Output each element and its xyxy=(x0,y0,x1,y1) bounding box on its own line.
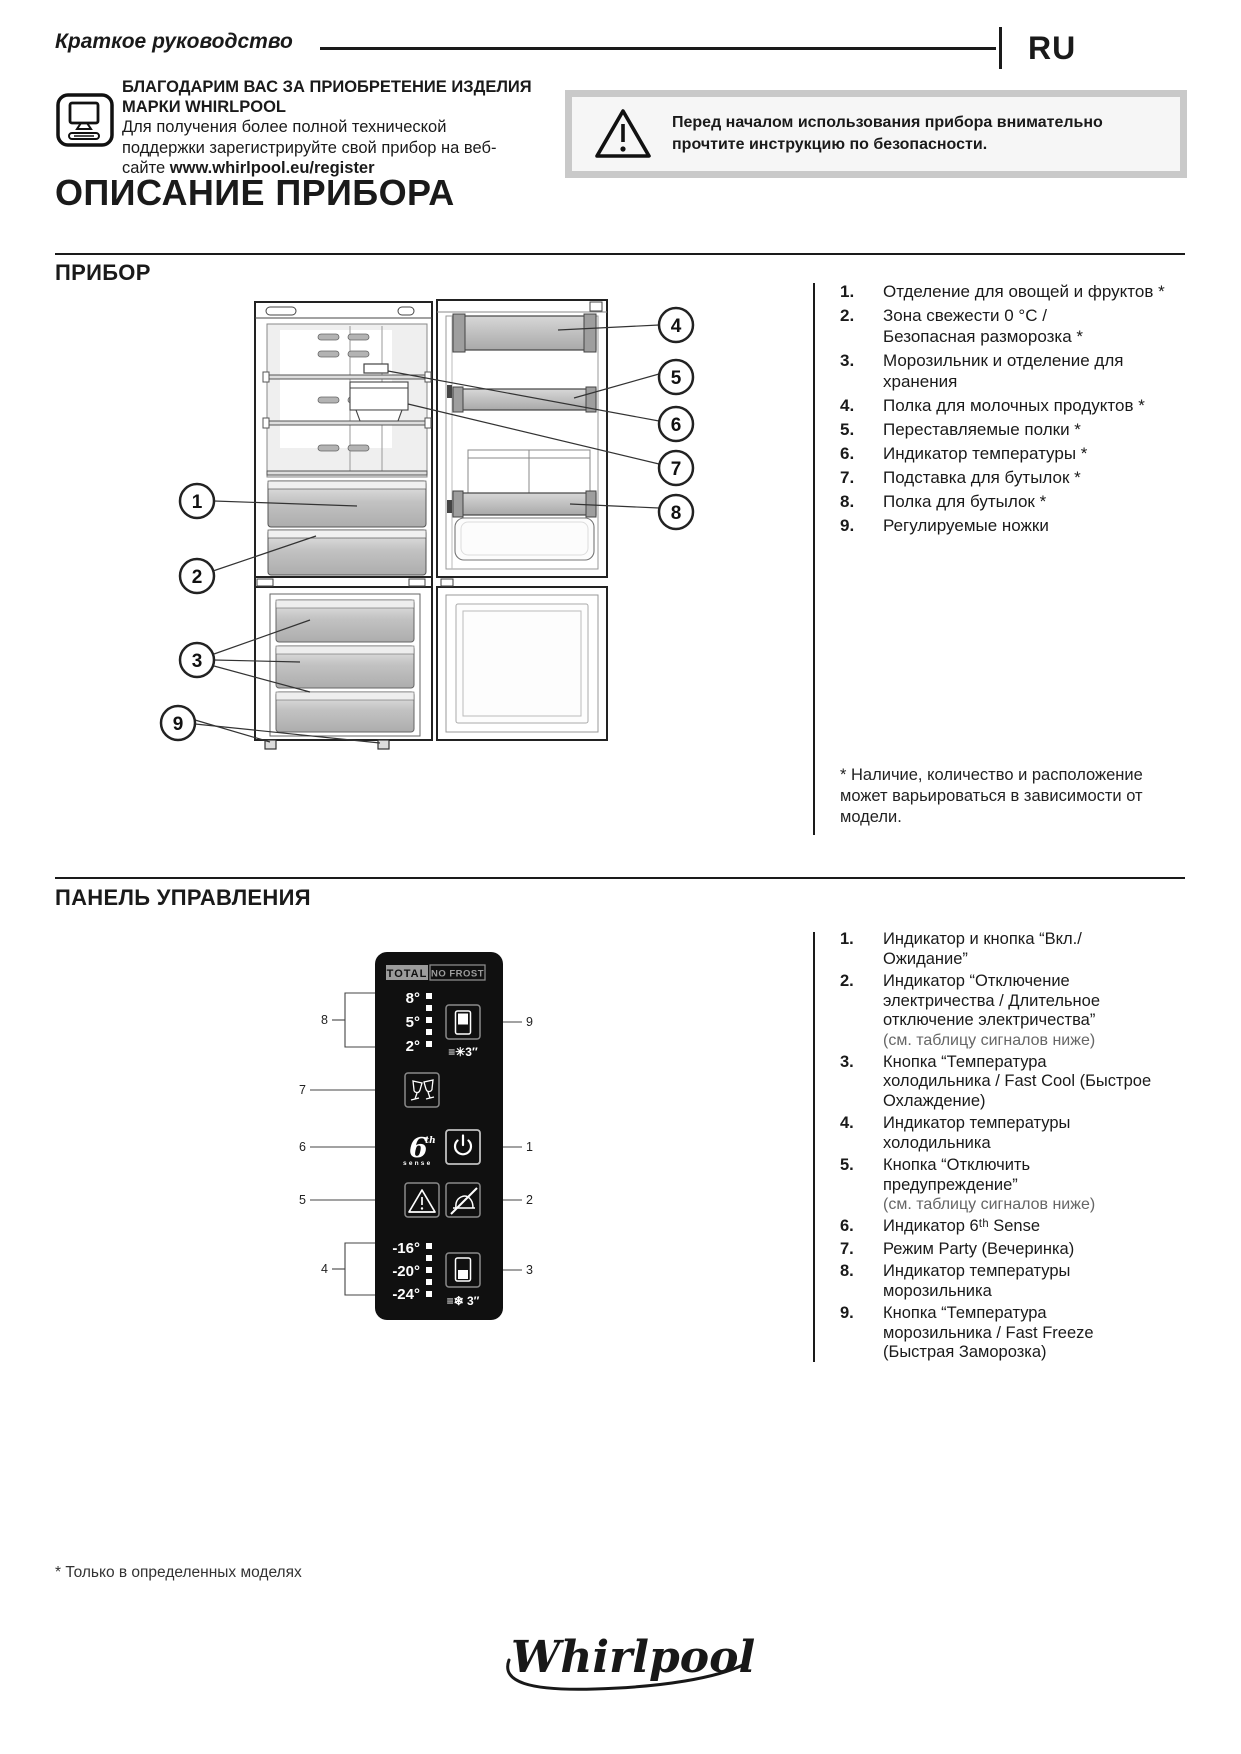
callout-6: 6 xyxy=(659,407,693,441)
callout-5: 5 xyxy=(659,360,693,394)
list-item: 9.Регулируемые ножки xyxy=(840,515,1192,536)
list-item: 7.Режим Party (Вечеринка) xyxy=(840,1240,1192,1260)
list-item: 2.Зона свежести 0 °C / Безопасная размор… xyxy=(840,305,1192,347)
freezer-drawers xyxy=(270,594,420,736)
list-item: 3.Морозильник и отделение для хранения xyxy=(840,350,1192,392)
fridge-cabinet xyxy=(255,302,432,749)
svg-text:5: 5 xyxy=(671,368,682,389)
list-item: 1.Отделение для овощей и фруктов * xyxy=(840,281,1192,302)
panel-callout-6: 6 xyxy=(299,1140,306,1154)
callout-4: 4 xyxy=(659,308,693,342)
list-item: 3.Кнопка “Температура холодильника / Fas… xyxy=(840,1053,1192,1112)
adjustable-foot-right xyxy=(378,740,389,749)
svg-text:-24°: -24° xyxy=(392,1286,420,1303)
page-footnote: * Только в определенных моделях xyxy=(55,1564,302,1582)
manual-page: Краткое руководство RU БЛАГОДАРИМ ВАС ЗА… xyxy=(0,0,1241,1754)
freezer-door xyxy=(437,579,607,740)
bottle-stand xyxy=(350,382,408,421)
appliance-diagram: 1 2 3 9 4 5 6 7 8 xyxy=(150,250,740,760)
list-item: 8.Индикатор температуры морозильника xyxy=(840,1262,1192,1301)
panel-callout-4: 4 xyxy=(321,1262,328,1276)
svg-text:9: 9 xyxy=(173,714,184,735)
panel-callout-8: 8 xyxy=(321,1013,328,1027)
warning-box: Перед началом использования прибора вним… xyxy=(565,90,1187,178)
door-bin-lower xyxy=(455,518,594,560)
panel-callout-7: 7 xyxy=(299,1083,306,1097)
fridge-hold-label: ≡✳3″ xyxy=(448,1045,478,1059)
svg-text:8: 8 xyxy=(671,503,682,524)
list-item: 1.Индикатор и кнопка “Вкл./ Ожидание” xyxy=(840,930,1192,969)
panel-list: 1.Индикатор и кнопка “Вкл./ Ожидание” 2.… xyxy=(840,930,1192,1366)
list-item: 4.Полка для молочных продуктов * xyxy=(840,395,1192,416)
list-item: 5.Переставляемые полки * xyxy=(840,419,1192,440)
appliance-footnote: * Наличие, количество и расположение мож… xyxy=(840,765,1170,828)
support-line-1: Для получения более полной технической xyxy=(122,118,582,138)
svg-text:1: 1 xyxy=(192,492,203,513)
appliance-column-divider xyxy=(813,283,815,835)
svg-text:TOTAL: TOTAL xyxy=(387,968,428,980)
door-shelf xyxy=(453,387,596,412)
control-panel-diagram: TOTAL NO FROST 8° 5° 2° ≡✳3″ xyxy=(290,945,540,1335)
panel-section-heading: ПАНЕЛЬ УПРАВЛЕНИЯ xyxy=(55,885,311,911)
list-item: 9.Кнопка “Температура морозильника / Fas… xyxy=(840,1304,1192,1363)
header-divider xyxy=(999,27,1002,69)
panel-callout-5: 5 xyxy=(299,1193,306,1207)
doc-type-title: Краткое руководство xyxy=(55,30,293,54)
svg-text:-20°: -20° xyxy=(392,1263,420,1280)
appliance-list: 1.Отделение для овощей и фруктов * 2.Зон… xyxy=(840,281,1192,539)
whirlpool-logo: Whirlpool xyxy=(495,1612,765,1712)
callout-9: 9 xyxy=(161,706,195,740)
thanks-text: БЛАГОДАРИМ ВАС ЗА ПРИОБРЕТЕНИЕ ИЗДЕЛИЯ М… xyxy=(122,78,582,117)
panel-callout-9: 9 xyxy=(526,1015,533,1029)
svg-text:th: th xyxy=(425,1136,436,1146)
list-item: 7.Подставка для бутылок * xyxy=(840,467,1192,488)
language-code: RU xyxy=(1028,30,1076,67)
list-item: 6.Индикатор температуры * xyxy=(840,443,1192,464)
warning-triangle-icon xyxy=(594,108,652,160)
register-computer-icon xyxy=(55,92,115,148)
appliance-section-heading: ПРИБОР xyxy=(55,260,151,286)
svg-text:3: 3 xyxy=(192,651,203,672)
intro-text-block: БЛАГОДАРИМ ВАС ЗА ПРИОБРЕТЕНИЕ ИЗДЕЛИЯ М… xyxy=(122,78,582,179)
callout-2: 2 xyxy=(180,559,214,593)
list-item: 4.Индикатор температуры холодильника xyxy=(840,1114,1192,1153)
panel-callout-1: 1 xyxy=(526,1140,533,1154)
svg-text:4: 4 xyxy=(671,316,682,337)
warning-text: Перед началом использования прибора вним… xyxy=(672,112,1103,156)
temperature-indicator xyxy=(364,364,388,373)
callout-3: 3 xyxy=(180,643,214,677)
list-item: 6.Индикатор 6ᵗʰ Sense xyxy=(840,1217,1192,1237)
svg-text:2: 2 xyxy=(192,567,203,588)
svg-text:8°: 8° xyxy=(406,990,420,1007)
callout-1: 1 xyxy=(180,484,214,518)
callout-8: 8 xyxy=(659,495,693,529)
fridge-door xyxy=(437,300,607,577)
page-title: ОПИСАНИЕ ПРИБОРА xyxy=(55,172,455,214)
svg-text:2°: 2° xyxy=(406,1038,420,1055)
brand-logo-text: Whirlpool xyxy=(511,1632,755,1683)
panel-section-rule xyxy=(55,877,1185,879)
list-item: 2.Индикатор “Отключение электричества / … xyxy=(840,972,1192,1050)
svg-text:7: 7 xyxy=(671,459,682,480)
svg-text:6: 6 xyxy=(671,415,682,436)
freezer-hold-label: ≡❄ 3″ xyxy=(447,1294,480,1308)
list-item: 8.Полка для бутылок * xyxy=(840,491,1192,512)
svg-text:5°: 5° xyxy=(406,1014,420,1031)
signal-table-note: (см. таблицу сигналов ниже) xyxy=(883,1195,1192,1214)
support-line-2: поддержки зарегистрируйте свой прибор на… xyxy=(122,139,582,159)
header-rule xyxy=(320,47,996,50)
svg-text:-16°: -16° xyxy=(392,1240,420,1257)
dairy-shelf xyxy=(453,314,596,352)
panel-column-divider xyxy=(813,932,815,1362)
signal-table-note: (см. таблицу сигналов ниже) xyxy=(883,1031,1192,1050)
panel-callout-2: 2 xyxy=(526,1193,533,1207)
svg-text:sense: sense xyxy=(403,1160,432,1167)
panel-callout-3: 3 xyxy=(526,1263,533,1277)
callout-7: 7 xyxy=(659,451,693,485)
list-item: 5.Кнопка “Отключить предупреждение”(см. … xyxy=(840,1156,1192,1214)
svg-text:NO FROST: NO FROST xyxy=(431,969,484,980)
